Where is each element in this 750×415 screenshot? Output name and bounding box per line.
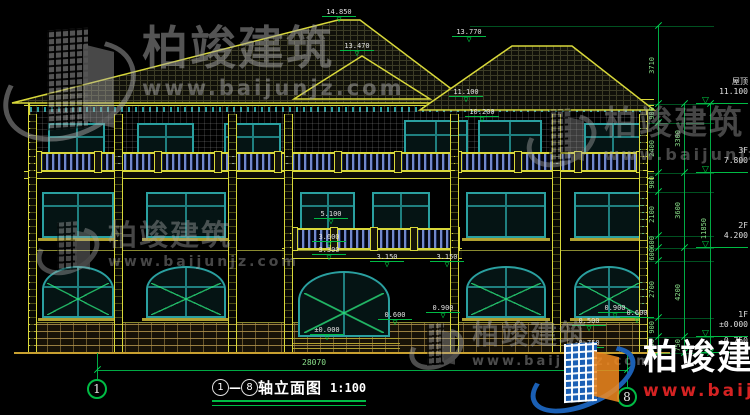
level-value: 7.800 bbox=[724, 156, 748, 165]
level-value: 11.100 bbox=[719, 87, 748, 96]
elevation-marker: 3.150▽ bbox=[370, 253, 404, 268]
level-triangle-icon: ▽ bbox=[430, 262, 464, 268]
level-name: 2F bbox=[738, 221, 748, 230]
level-triangle-icon: ▽ bbox=[426, 313, 460, 319]
level-triangle-icon: ▽ bbox=[620, 318, 654, 324]
level-triangle-icon: ▽ bbox=[312, 255, 346, 261]
roof-and-ground-linework bbox=[0, 0, 750, 415]
level-flag-line bbox=[696, 352, 748, 353]
level-triangle-icon: ▽ bbox=[340, 51, 374, 57]
dim-chain-line bbox=[684, 104, 685, 353]
drawing-title-text: 轴立面图 bbox=[258, 379, 322, 397]
dim-label: 750 bbox=[646, 329, 657, 361]
elevation-marker: 0.900▽ bbox=[426, 304, 460, 319]
level-triangle-icon: ▽ bbox=[370, 262, 404, 268]
axis-number: 8 bbox=[623, 390, 631, 404]
axis-range-dash: — bbox=[229, 381, 241, 395]
axis-bubble-to: 8 bbox=[241, 379, 258, 396]
overall-width-dim-line bbox=[97, 370, 627, 371]
elevation-marker: 0.600▽ bbox=[378, 311, 412, 326]
axis-bubble-from: 1 bbox=[212, 379, 229, 396]
dim-label: 3300 bbox=[672, 123, 683, 155]
drawing-scale: 1:100 bbox=[330, 381, 366, 395]
level-triangle-icon: ▽ bbox=[378, 320, 412, 326]
level-triangle-icon: ▽ bbox=[570, 348, 604, 354]
dim-value: 2400 bbox=[648, 140, 656, 157]
dim-label: 3710 bbox=[646, 49, 657, 81]
dim-value: 4200 bbox=[674, 284, 682, 301]
dim-label: 900 bbox=[646, 98, 657, 130]
level-value: 4.200 bbox=[724, 231, 748, 240]
level-triangle-icon: ▽ bbox=[702, 241, 709, 250]
level-triangle-icon: ▽ bbox=[702, 346, 709, 355]
dim-label: 2400 bbox=[646, 132, 657, 164]
dim-label: 900 bbox=[646, 167, 657, 199]
dim-value: 2700 bbox=[648, 281, 656, 298]
axis-number: 1 bbox=[93, 382, 101, 396]
dim-value: 750 bbox=[674, 339, 682, 352]
axis-bubble: 8 bbox=[617, 387, 637, 407]
dim-label: 3600 bbox=[672, 195, 683, 227]
axis-bubble: 1 bbox=[87, 379, 107, 399]
title-underline bbox=[212, 400, 366, 402]
elevation-marker: 3.300▽ bbox=[312, 246, 346, 261]
elevation-marker: ±0.000▽ bbox=[310, 326, 344, 341]
elevation-marker: 0.600▽ bbox=[620, 309, 654, 324]
level-flag: 屋顶11.100▽ bbox=[696, 78, 748, 104]
elevation-marker: 0.500▽ bbox=[572, 317, 606, 332]
dim-value: 750 bbox=[648, 339, 656, 352]
dim-value: 3300 bbox=[674, 130, 682, 147]
drawing-title-block: 1—8轴立面图1:100 bbox=[212, 377, 366, 398]
level-name: 3F bbox=[738, 146, 748, 155]
elevation-marker: 3.150▽ bbox=[430, 253, 464, 268]
level-triangle-icon: ▽ bbox=[310, 335, 344, 341]
elevation-marker: 13.770▽ bbox=[452, 28, 486, 43]
level-flag-line bbox=[696, 103, 748, 104]
level-flag: 2F4.200▽ bbox=[696, 222, 748, 248]
title-underline bbox=[212, 405, 366, 406]
dim-value: 900 bbox=[648, 176, 656, 189]
elevation-marker: 14.850▽ bbox=[322, 8, 356, 23]
level-triangle-icon: ▽ bbox=[314, 219, 348, 225]
level-name: 屋顶 bbox=[732, 77, 748, 86]
elevation-marker: 11.100▽ bbox=[449, 88, 483, 103]
dim-label: 600 bbox=[646, 239, 657, 271]
level-triangle-icon: ▽ bbox=[572, 326, 606, 332]
elevation-marker: -0.750▽ bbox=[570, 339, 604, 354]
level-flag-line bbox=[696, 172, 748, 173]
level-flag-line bbox=[696, 247, 748, 248]
level-flag: 3F7.800▽ bbox=[696, 147, 748, 173]
dim-label: 750 bbox=[672, 329, 683, 361]
overall-width-dim-value: 28070 bbox=[302, 358, 326, 367]
elevation-marker: 10.200▽ bbox=[465, 108, 499, 123]
level-name: 1F bbox=[738, 310, 748, 319]
level-flag: -0.750▽ bbox=[696, 327, 748, 353]
dim-extension-line bbox=[470, 26, 714, 27]
level-triangle-icon: ▽ bbox=[452, 37, 486, 43]
dim-label: 2700 bbox=[646, 274, 657, 306]
dim-value: 3600 bbox=[674, 202, 682, 219]
dim-value: 2100 bbox=[648, 206, 656, 223]
level-triangle-icon: ▽ bbox=[702, 97, 709, 106]
elevation-marker: 13.470▽ bbox=[340, 42, 374, 57]
dim-value: 600 bbox=[648, 248, 656, 261]
dim-value: 3710 bbox=[648, 57, 656, 74]
elevation-marker: 5.100▽ bbox=[314, 210, 348, 225]
dim-label: 4200 bbox=[672, 277, 683, 309]
level-triangle-icon: ▽ bbox=[702, 166, 709, 175]
level-triangle-icon: ▽ bbox=[465, 117, 499, 123]
cad-canvas: 柏竣建筑 www.baijunjz.com 柏竣建筑 www.baijunjz.… bbox=[0, 0, 750, 415]
level-triangle-icon: ▽ bbox=[322, 17, 356, 23]
dim-value: 900 bbox=[648, 107, 656, 120]
level-triangle-icon: ▽ bbox=[449, 97, 483, 103]
level-value: -0.750 bbox=[719, 336, 748, 345]
